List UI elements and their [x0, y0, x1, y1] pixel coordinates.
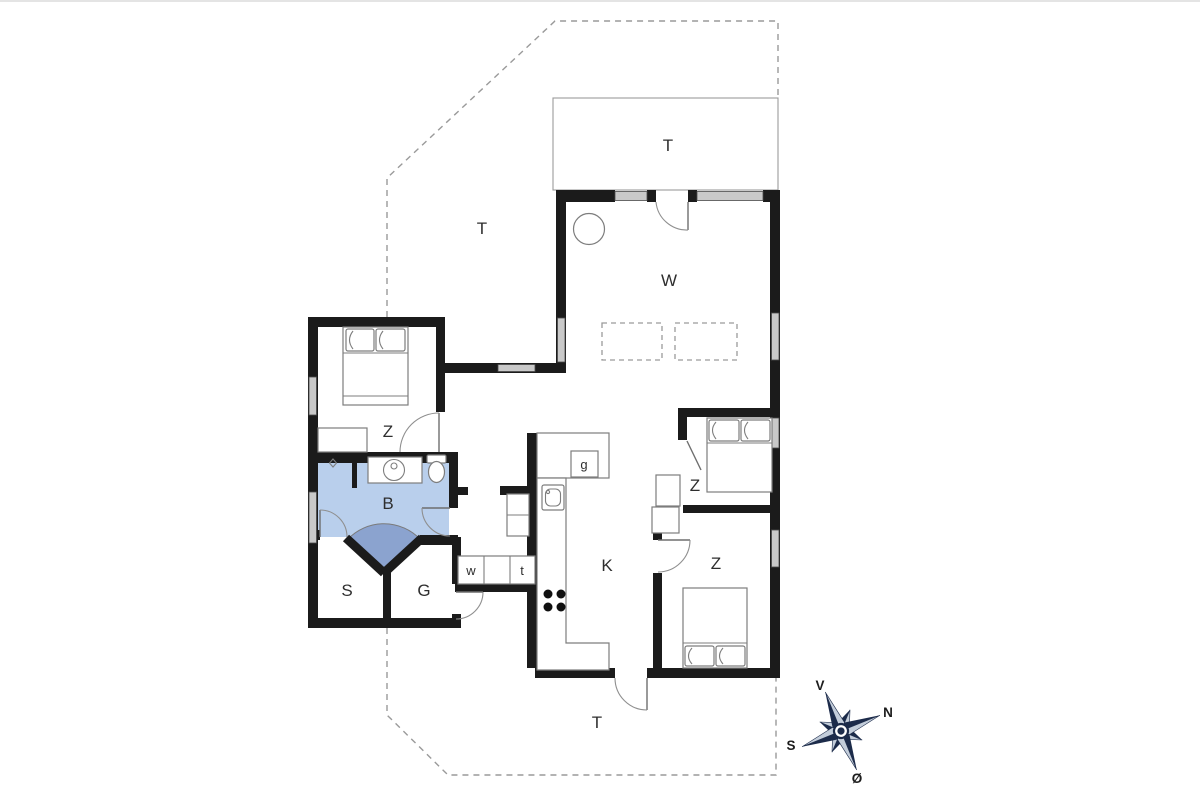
room-label-kitchen: K	[601, 556, 613, 575]
window-north-1	[615, 192, 647, 201]
room-label-appliance-g: g	[580, 457, 587, 472]
room-label-utility-w: w	[465, 563, 476, 578]
room-label-bathroom: B	[382, 494, 393, 513]
compass-label-north: N	[883, 705, 893, 720]
room-label-terrace-south: T	[592, 713, 602, 732]
compass-label-south: S	[786, 738, 795, 753]
bed-nw	[343, 327, 408, 405]
room-label-bedroom-east: Z	[690, 476, 700, 495]
top-hairline	[0, 0, 1200, 2]
window-north-2	[697, 192, 763, 201]
vanity	[368, 457, 422, 483]
room-label-utility-t: t	[520, 563, 524, 578]
toilet-bowl	[429, 462, 445, 483]
kitchen-sink	[542, 485, 564, 510]
window-bedroom-nw	[309, 377, 317, 415]
floorplan-canvas: T T T W Z Z Z B S G K w t g V N	[0, 0, 1200, 800]
compass-label-west: V	[815, 678, 824, 693]
window-hall-north	[498, 365, 535, 372]
wardrobe-nw	[318, 428, 367, 452]
bed-east	[707, 418, 772, 492]
room-label-s: S	[341, 581, 352, 600]
window-bedroom-east	[772, 418, 780, 448]
compass-label-east: Ø	[852, 771, 863, 786]
room-label-terrace-west: T	[477, 219, 487, 238]
room-label-bedroom-se: Z	[711, 554, 721, 573]
bed-se	[683, 588, 747, 668]
room-label-terrace-north: T	[663, 136, 673, 155]
window-bathroom-west	[309, 492, 317, 543]
room-label-living: W	[661, 271, 677, 290]
wood-stove	[574, 214, 605, 245]
room-label-g: G	[417, 581, 430, 600]
window-living-east	[772, 313, 780, 360]
window-living-west	[558, 318, 566, 362]
window-bedroom-se	[772, 530, 780, 567]
room-label-bedroom-nw: Z	[383, 422, 393, 441]
